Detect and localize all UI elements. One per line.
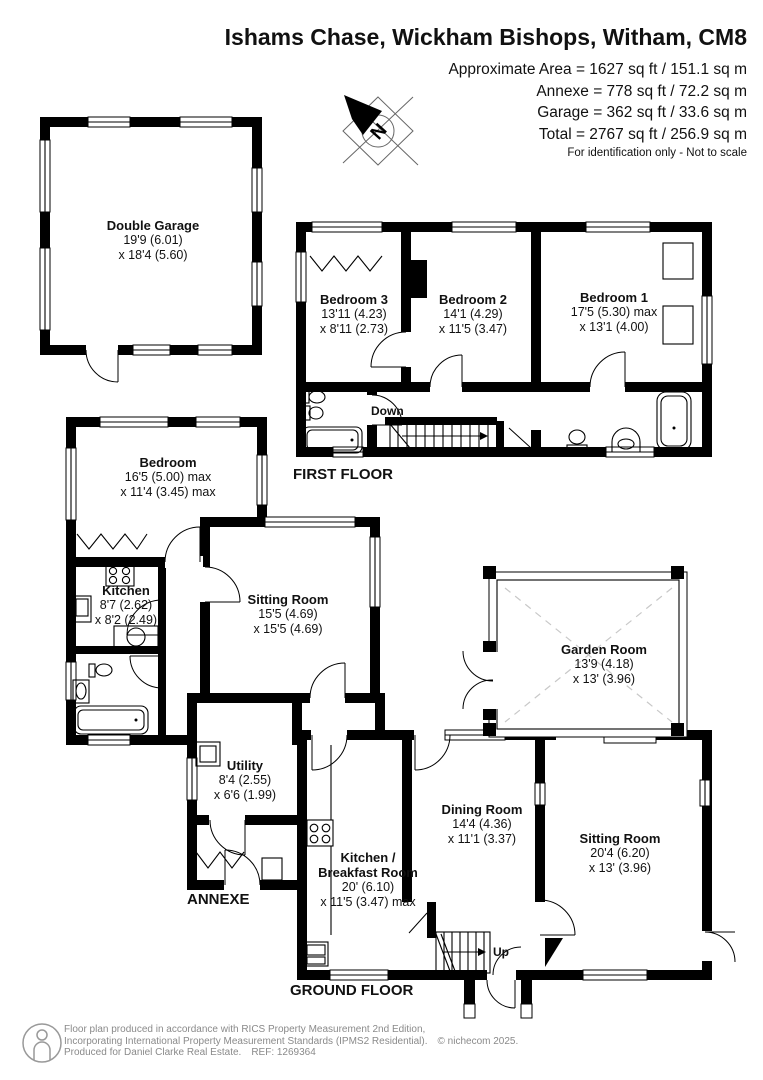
room-label-bedroom1: Bedroom 1 17'5 (5.30) max x 13'1 (4.00) bbox=[571, 290, 657, 335]
ground-floor-label: GROUND FLOOR bbox=[290, 982, 413, 999]
disclaimer: For identification only - Not to scale bbox=[567, 147, 747, 159]
area-line-annexe: Annexe = 778 sq ft / 72.2 sq m bbox=[448, 81, 747, 103]
annexe-label: ANNEXE bbox=[187, 891, 250, 908]
floorplan-drawing: N bbox=[0, 0, 763, 1080]
stairs-down-label: Down bbox=[371, 404, 404, 418]
area-line-garage: Garage = 362 sq ft / 33.6 sq m bbox=[448, 102, 747, 124]
footer-line3: Produced for Daniel Clarke Real Estate.R… bbox=[64, 1047, 518, 1059]
room-label-sitting-room: Sitting Room 20'4 (6.20) x 13' (3.96) bbox=[580, 831, 661, 876]
chimney-breast bbox=[401, 260, 427, 298]
stairs-up-label: Up bbox=[493, 945, 509, 959]
area-summary: Approximate Area = 1627 sq ft / 151.1 sq… bbox=[448, 59, 747, 145]
footer-disclaimer: Floor plan produced in accordance with R… bbox=[64, 1024, 518, 1059]
room-label-annexe-kitchen: Kitchen 8'7 (2.62) x 8'2 (2.49) bbox=[95, 583, 157, 628]
area-line-total: Total = 2767 sq ft / 256.9 sq m bbox=[448, 124, 747, 146]
copyright: © nichecom 2025. bbox=[438, 1036, 519, 1047]
footer-line1: Floor plan produced in accordance with R… bbox=[64, 1024, 518, 1036]
room-label-dining-room: Dining Room 14'4 (4.36) x 11'1 (3.37) bbox=[442, 802, 523, 847]
room-label-bedroom2: Bedroom 2 14'1 (4.29) x 11'5 (3.47) bbox=[439, 292, 507, 337]
person-icon bbox=[23, 1024, 61, 1062]
page-title: Ishams Chase, Wickham Bishops, Witham, C… bbox=[225, 24, 747, 51]
footer-line2: Incorporating International Property Mea… bbox=[64, 1036, 518, 1048]
floorplan-page: N Ishams Chase, Wickham Bishops, Witham,… bbox=[0, 0, 763, 1080]
first-floor-label: FIRST FLOOR bbox=[293, 466, 393, 483]
area-line-approximate: Approximate Area = 1627 sq ft / 151.1 sq… bbox=[448, 59, 747, 81]
room-label-annexe-sitting-room: Sitting Room 15'5 (4.69) x 15'5 (4.69) bbox=[248, 592, 329, 637]
room-label-annexe-bedroom: Bedroom 16'5 (5.00) max x 11'4 (3.45) ma… bbox=[120, 455, 215, 500]
compass-rose: N bbox=[343, 95, 418, 165]
room-label-double-garage: Double Garage 19'9 (6.01) x 18'4 (5.60) bbox=[107, 218, 199, 263]
room-label-utility: Utility 8'4 (2.55) x 6'6 (1.99) bbox=[214, 758, 276, 803]
room-label-garden-room: Garden Room 13'9 (4.18) x 13' (3.96) bbox=[561, 642, 647, 687]
room-label-kitchen-breakfast-room: Kitchen / Breakfast Room 20' (6.10) x 11… bbox=[318, 850, 418, 910]
reference-number: REF: 1269364 bbox=[251, 1047, 316, 1058]
room-label-bedroom3: Bedroom 3 13'11 (4.23) x 8'11 (2.73) bbox=[320, 292, 388, 337]
